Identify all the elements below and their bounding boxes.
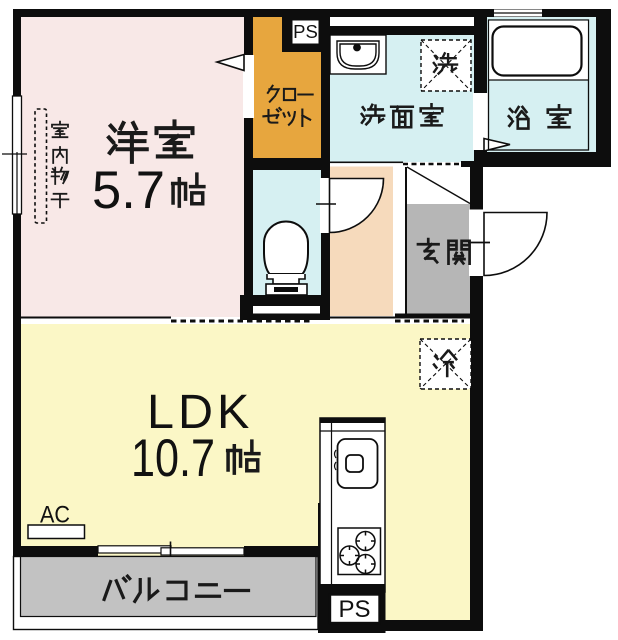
svg-text:AC: AC [40, 502, 70, 529]
svg-text:PS: PS [293, 21, 318, 42]
svg-text:PS: PS [338, 596, 370, 623]
svg-text:10.7: 10.7 [131, 429, 215, 488]
svg-text:5.7: 5.7 [92, 161, 165, 220]
